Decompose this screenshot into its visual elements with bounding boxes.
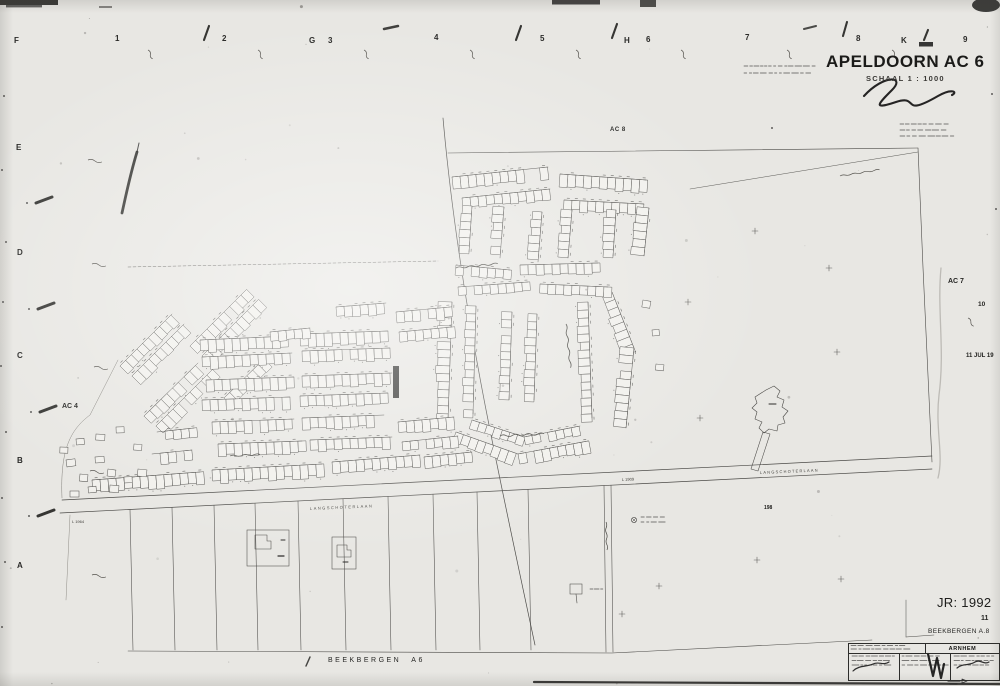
grid-label-top-F: F [14,37,19,45]
sheet-title: APELDOORN AC 6 [826,53,984,70]
svg-text:L 1964: L 1964 [72,519,85,524]
grid-label-top-7: 7 [745,34,749,42]
svg-text:LANGSCHOTERLAAN: LANGSCHOTERLAAN [310,503,374,511]
title-block-office: ARNHEM [949,646,977,652]
neighbor-sheet-left: AC 4 [62,403,78,410]
grid-label-top-6: 6 [646,36,650,44]
title-block-header-right: ARNHEM [926,644,999,653]
title-block-cell-1 [849,654,900,680]
title-block-header-row: ARNHEM [849,644,999,654]
grid-label-top-8: 8 [856,35,860,43]
grid-label-left-B: B [17,457,23,465]
grid-label-left-E: E [16,144,21,152]
grid-label-top-5: 5 [540,35,544,43]
map-sheet: LANGSCHOTERLAANLANGSCHOTERLAANL 1964L 19… [0,0,1000,686]
title-block-signature-row [849,654,999,680]
grid-label-left-C: C [17,352,23,360]
svg-text:LANGSCHOTERLAAN: LANGSCHOTERLAAN [760,468,819,475]
svg-text:198: 198 [764,505,773,511]
field-features [230,169,880,617]
neighbor-sheet-bottom: BEEKBERGEN A6 [328,657,425,664]
grid-label-left-A: A [17,562,23,570]
date-stamp: 11 JUL 19 [966,353,994,359]
title-block-header-left [849,644,926,653]
grid-label-top-3: 3 [328,37,332,45]
neighbor-sheet-top: AC 8 [610,127,626,133]
grid-label-top-H: H [624,37,630,45]
neighbor-sheet-right: AC 7 [948,278,964,285]
svg-text:L 1909: L 1909 [622,477,635,482]
year-label: JR: 1992 [937,596,991,609]
sheet-number: 11 [981,615,988,622]
title-block-cell-3 [951,654,999,680]
title-block-cell-2 [900,654,951,680]
grid-label-top-G: G [309,37,315,45]
title-block: ARNHEM [848,643,1000,681]
scale-label: SCHAAL 1 : 1000 [866,75,945,83]
grid-label-top-2: 2 [222,35,226,43]
grid-label-left-D: D [17,249,23,257]
stamps-and-signatures [744,66,994,678]
map-canvas: LANGSCHOTERLAANLANGSCHOTERLAANL 1964L 19… [0,0,1000,686]
housing-blocks [60,165,664,497]
neighbor-sheet-bottom-right: BEEKBERGEN A.8 [928,629,990,636]
grid-label-top-9: 9 [963,36,967,44]
grid-label-top-4: 4 [434,34,438,42]
grid-label-top-K: K [901,37,907,45]
grid-label-top-1: 1 [115,35,119,43]
neighbor-sheet-right-number: 10 [978,302,985,309]
